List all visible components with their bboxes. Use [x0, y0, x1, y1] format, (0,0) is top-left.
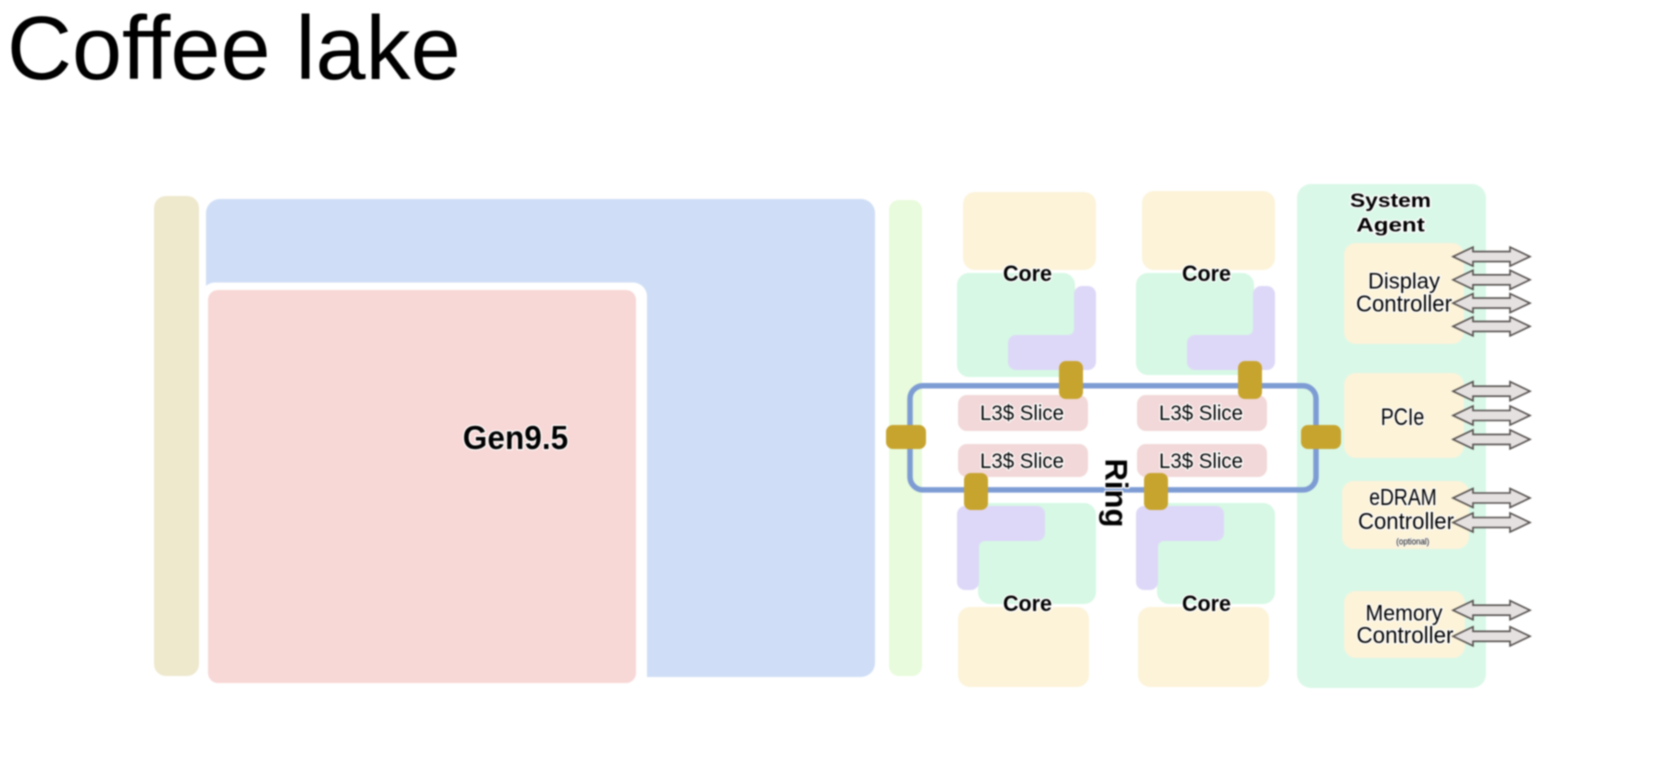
svg-text:Controller: Controller [1358, 508, 1454, 534]
svg-text:System: System [1350, 190, 1431, 212]
svg-text:Controller: Controller [1356, 291, 1452, 317]
svg-text:Coffee lake: Coffee lake [7, 0, 461, 99]
svg-text:Core: Core [1003, 591, 1052, 616]
svg-text:L3$ Slice: L3$ Slice [1159, 450, 1243, 473]
svg-text:Controller: Controller [1357, 622, 1454, 648]
svg-text:L3$ Slice: L3$ Slice [980, 450, 1064, 473]
svg-text:PCIe: PCIe [1381, 404, 1425, 431]
svg-text:Ring: Ring [1099, 459, 1135, 528]
svg-text:L3$ Slice: L3$ Slice [1159, 402, 1243, 425]
svg-text:Core: Core [1182, 261, 1231, 286]
svg-text:(optional): (optional) [1396, 537, 1429, 548]
svg-text:L3$ Slice: L3$ Slice [980, 402, 1064, 425]
svg-text:Agent: Agent [1356, 214, 1425, 236]
svg-text:Gen9.5: Gen9.5 [463, 419, 569, 456]
svg-text:eDRAM: eDRAM [1369, 484, 1437, 510]
svg-text:Core: Core [1003, 261, 1052, 286]
svg-text:Core: Core [1182, 591, 1231, 616]
